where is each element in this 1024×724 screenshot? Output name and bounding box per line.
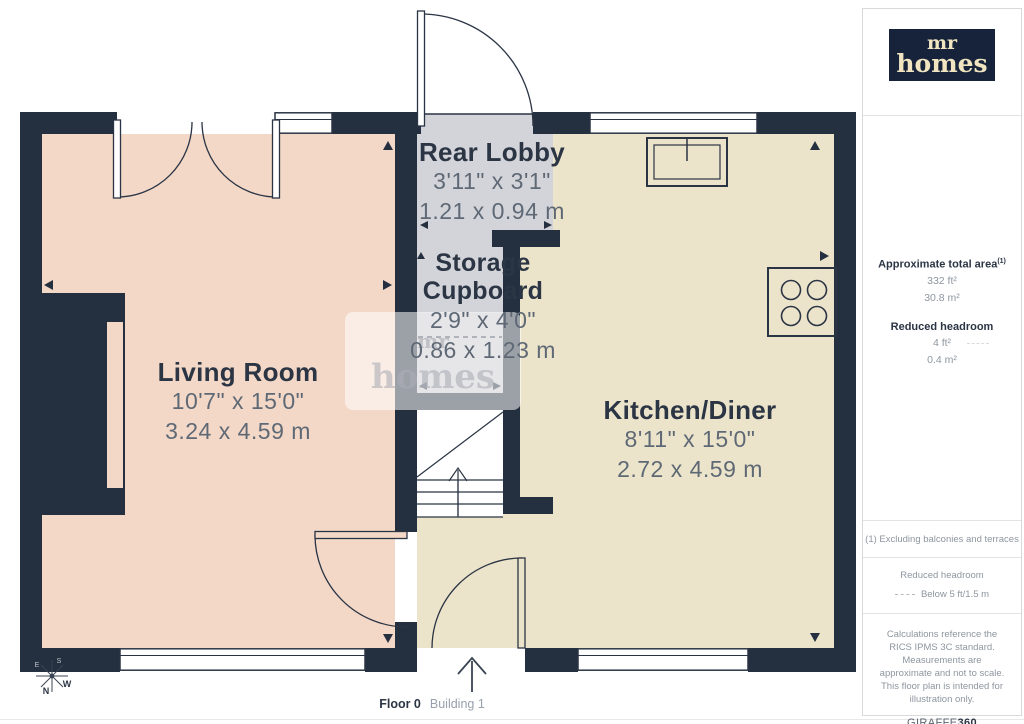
door-leaf: [273, 120, 280, 198]
dash-swatch: [967, 343, 989, 344]
wall-segment: [332, 112, 421, 134]
rear-lobby-label: Rear Lobby 3'11" x 3'1" 1.21 x 0.94 m: [419, 138, 565, 226]
floor-number: Floor 0: [379, 697, 421, 711]
headroom-title: Reduced headroom: [863, 320, 1021, 335]
footnote-section: (1) Excluding balconies and terraces: [863, 521, 1021, 558]
logo-line-homes: homes: [896, 52, 987, 76]
floorplan-page: mr homes N W E S Living Room 10'7" x 15'…: [0, 0, 1024, 724]
room-dim-imperial: 2'9" x 4'0": [410, 305, 556, 335]
wall-segment: [525, 648, 578, 672]
floor-caption: Floor 0 Building 1: [379, 697, 485, 711]
door-leaf: [114, 120, 121, 198]
area-title: Approximate total area(1): [863, 254, 1021, 273]
compass-s: S: [57, 658, 62, 665]
wall-segment: [492, 230, 560, 247]
headroom-ft: 4 ft²: [863, 335, 1021, 352]
room-name: Rear Lobby: [419, 138, 565, 166]
window: [275, 113, 332, 133]
wall-segment: [365, 648, 417, 672]
compass-w: W: [63, 679, 72, 689]
wall-segment: [395, 622, 417, 648]
wall-segment: [533, 112, 590, 134]
footnote-text: (1) Excluding balconies and terraces: [865, 534, 1019, 545]
building-number: Building 1: [430, 697, 485, 711]
rear-door-threshold: [421, 114, 533, 134]
room-dim-metric: 3.24 x 4.59 m: [158, 416, 319, 446]
wall-segment: [503, 497, 553, 514]
window: [578, 649, 748, 670]
room-name: Storage: [410, 249, 556, 277]
room-name: Cupboard: [410, 277, 556, 305]
wall-segment: [834, 112, 856, 672]
headroom-m: 0.4 m²: [863, 352, 1021, 369]
kitchen-diner-label: Kitchen/Diner 8'11" x 15'0" 2.72 x 4.59 …: [604, 396, 777, 484]
legend-section: Reduced headroom Below 5 ft/1.5 m: [863, 558, 1021, 614]
info-sidebar: mr homes Approximate total area(1) 332 f…: [862, 8, 1022, 716]
room-name: Kitchen/Diner: [604, 396, 777, 424]
disclaimer-text: Calculations reference the RICS IPMS 3C …: [876, 628, 1008, 706]
door-leaf: [315, 532, 407, 539]
storage-cupboard-label: Storage Cupboard 2'9" x 4'0" 0.86 x 1.23…: [410, 249, 556, 365]
room-dim-imperial: 3'11" x 3'1": [419, 166, 565, 196]
legend-value: Below 5 ft/1.5 m: [921, 589, 989, 600]
living-room-label: Living Room 10'7" x 15'0" 3.24 x 4.59 m: [158, 358, 319, 446]
area-section: Approximate total area(1) 332 ft² 30.8 m…: [863, 116, 1021, 521]
door-leaf: [518, 558, 525, 648]
compass-n: N: [43, 686, 50, 696]
compass-e: E: [35, 662, 40, 669]
logo-section: mr homes: [863, 9, 1021, 116]
page-bottom-divider: [0, 719, 1024, 720]
dashed-line-swatch: [895, 594, 915, 595]
room-dim-metric: 2.72 x 4.59 m: [604, 454, 777, 484]
area-m: 30.8 m²: [863, 290, 1021, 307]
room-name: Living Room: [158, 358, 319, 386]
chimney-alcove: [107, 322, 123, 488]
mr-homes-logo: mr homes: [889, 29, 995, 81]
lobby-storage-doorway-floor: [417, 230, 492, 247]
door-leaf: [418, 11, 425, 126]
area-ft: 332 ft²: [863, 273, 1021, 290]
window: [120, 649, 365, 670]
room-dim-imperial: 10'7" x 15'0": [158, 386, 319, 416]
legend-title: Reduced headroom: [863, 570, 1021, 581]
room-dim-imperial: 8'11" x 15'0": [604, 424, 777, 454]
room-dim-metric: 0.86 x 1.23 m: [410, 335, 556, 365]
wall-segment: [748, 648, 856, 672]
rear-door: [418, 11, 534, 126]
disclaimer-section: Calculations reference the RICS IPMS 3C …: [863, 614, 1021, 717]
room-dim-metric: 1.21 x 0.94 m: [419, 196, 565, 226]
entry-arrow-icon: [458, 658, 486, 692]
stairs-floor: [417, 410, 503, 517]
window: [590, 113, 757, 133]
giraffe360-brand: GIRAFFE360: [876, 717, 1008, 724]
